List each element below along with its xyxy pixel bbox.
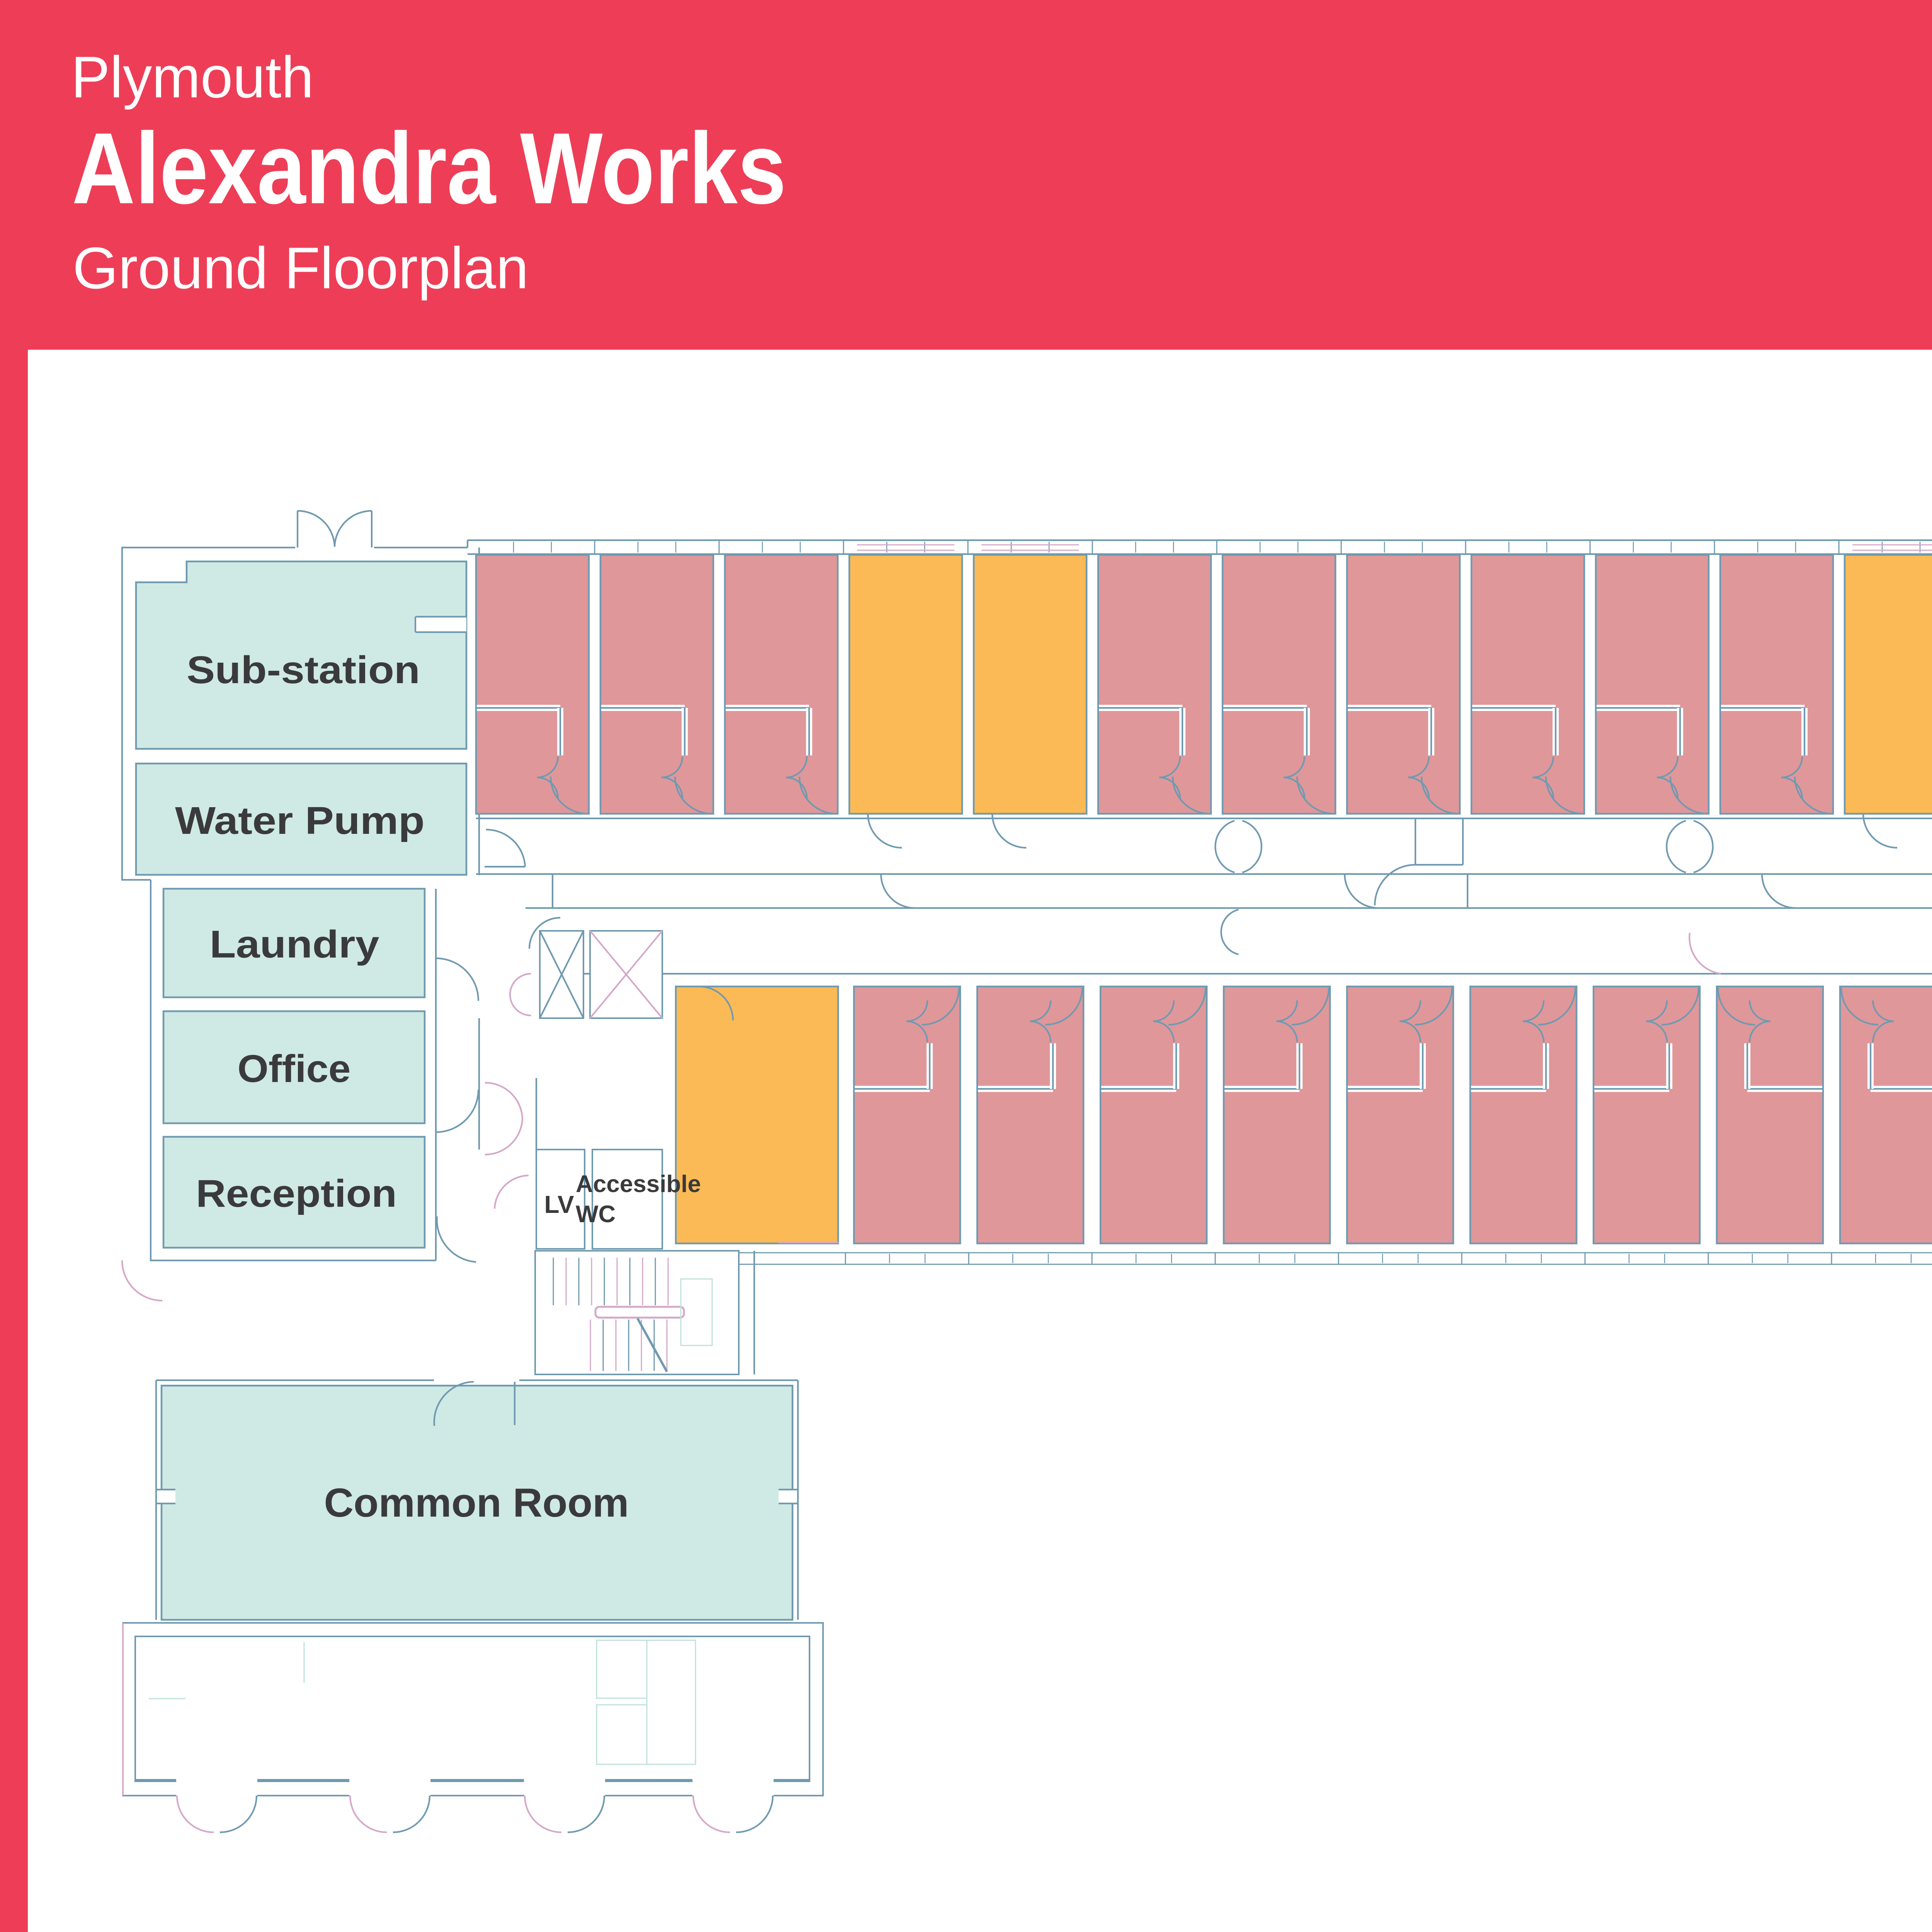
svg-text:LV: LV: [544, 1190, 574, 1218]
svg-text:Ground Floorplan: Ground Floorplan: [73, 235, 529, 301]
svg-text:Common Room: Common Room: [324, 1480, 629, 1526]
svg-text:WC: WC: [576, 1201, 616, 1228]
svg-text:Sub-station: Sub-station: [187, 648, 420, 692]
svg-text:Reception: Reception: [196, 1172, 397, 1215]
svg-text:Laundry: Laundry: [210, 923, 379, 966]
svg-text:Plymouth: Plymouth: [71, 44, 314, 110]
svg-text:Accessible: Accessible: [576, 1171, 701, 1197]
svg-text:Alexandra Works: Alexandra Works: [72, 112, 786, 225]
svg-text:Water Pump: Water Pump: [175, 799, 425, 842]
svg-text:Office: Office: [238, 1047, 351, 1090]
